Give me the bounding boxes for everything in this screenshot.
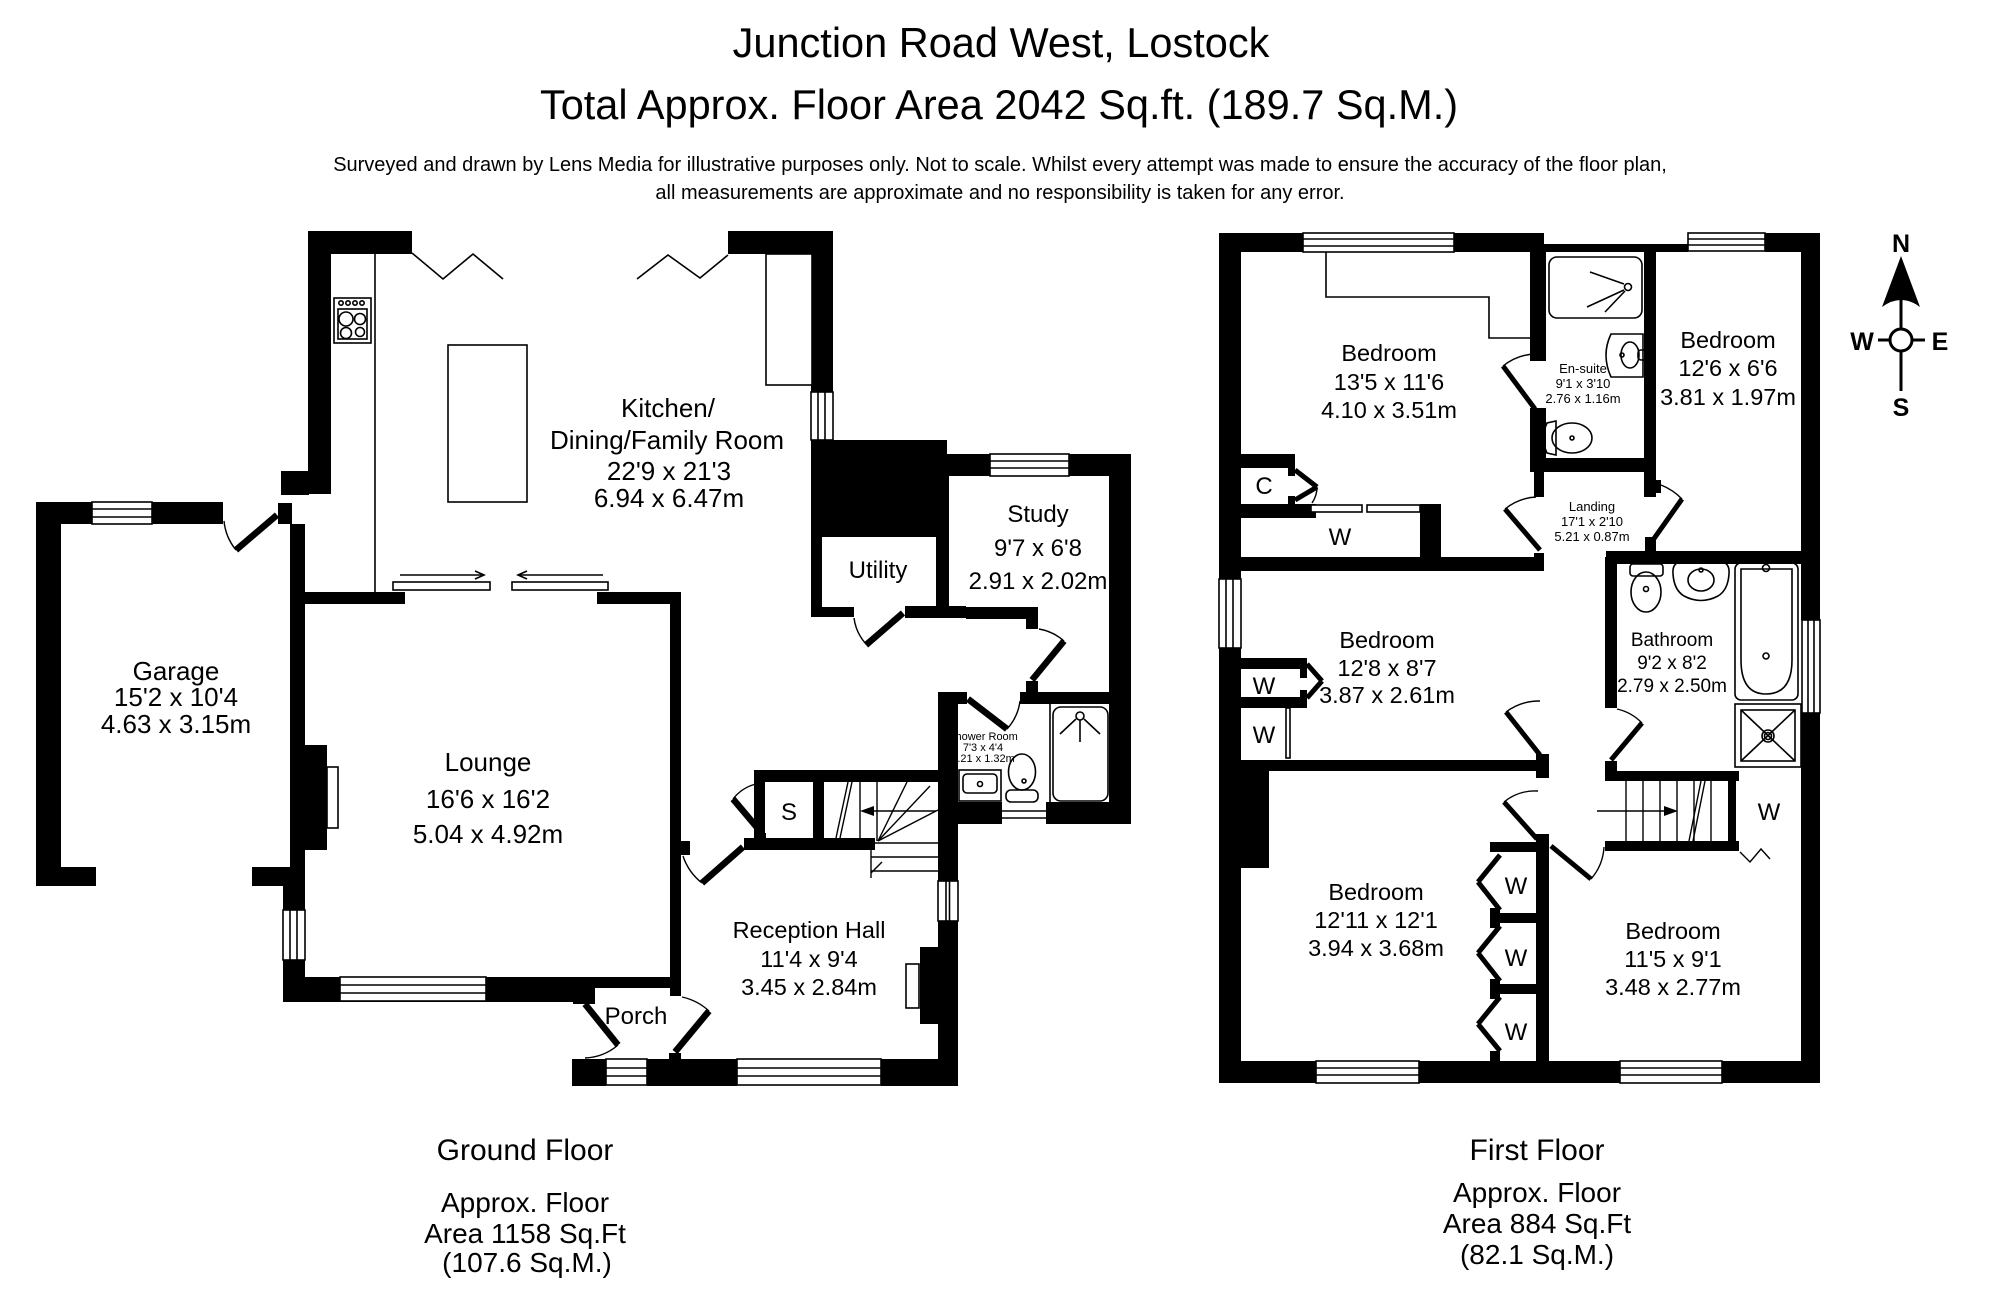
svg-text:16'6 x 16'2: 16'6 x 16'2 bbox=[426, 784, 550, 814]
svg-text:Bedroom: Bedroom bbox=[1328, 879, 1423, 905]
svg-text:9'7 x 6'8: 9'7 x 6'8 bbox=[994, 535, 1082, 562]
svg-text:15'2 x 10'4: 15'2 x 10'4 bbox=[114, 682, 238, 712]
svg-text:Lounge: Lounge bbox=[445, 747, 532, 777]
svg-text:12'8 x 8'7: 12'8 x 8'7 bbox=[1337, 655, 1436, 681]
svg-text:Approx. Floor: Approx. Floor bbox=[441, 1187, 609, 1218]
svg-text:Bedroom: Bedroom bbox=[1341, 340, 1436, 366]
svg-text:13'5 x 11'6: 13'5 x 11'6 bbox=[1334, 369, 1444, 395]
svg-text:W: W bbox=[1505, 945, 1528, 972]
svg-text:Study: Study bbox=[1007, 501, 1068, 528]
svg-text:3.45 x 2.84m: 3.45 x 2.84m bbox=[741, 974, 877, 1000]
svg-text:Landing: Landing bbox=[1569, 499, 1615, 514]
svg-text:4.10 x 3.51m: 4.10 x 3.51m bbox=[1321, 397, 1457, 423]
svg-text:(107.6 Sq.M.): (107.6 Sq.M.) bbox=[442, 1247, 612, 1278]
svg-text:N: N bbox=[1892, 230, 1910, 258]
svg-text:Junction Road West, Lostock: Junction Road West, Lostock bbox=[733, 19, 1270, 66]
svg-text:W: W bbox=[1253, 722, 1276, 749]
svg-text:5.04 x 4.92m: 5.04 x 4.92m bbox=[413, 819, 563, 849]
svg-text:S: S bbox=[781, 799, 797, 826]
svg-text:Total Approx. Floor Area 2042: Total Approx. Floor Area 2042 Sq.ft. (18… bbox=[540, 81, 1458, 128]
svg-text:6.94 x 6.47m: 6.94 x 6.47m bbox=[594, 483, 744, 513]
svg-text:Bedroom: Bedroom bbox=[1625, 918, 1720, 944]
svg-text:W: W bbox=[1850, 328, 1874, 356]
svg-text:S: S bbox=[1893, 394, 1910, 422]
svg-text:4.63 x 3.15m: 4.63 x 3.15m bbox=[101, 709, 251, 739]
svg-text:Surveyed and drawn by Lens Med: Surveyed and drawn by Lens Media for ill… bbox=[333, 154, 1667, 176]
svg-text:C: C bbox=[1255, 473, 1272, 500]
svg-text:3.48 x 2.77m: 3.48 x 2.77m bbox=[1605, 974, 1741, 1000]
svg-text:11'5 x 9'1: 11'5 x 9'1 bbox=[1624, 946, 1721, 972]
svg-text:3.81 x 1.97m: 3.81 x 1.97m bbox=[1660, 384, 1796, 410]
svg-text:22'9 x 21'3: 22'9 x 21'3 bbox=[607, 456, 731, 486]
svg-text:Reception Hall: Reception Hall bbox=[733, 917, 886, 943]
svg-text:9'2 x 8'2: 9'2 x 8'2 bbox=[1637, 653, 1707, 674]
svg-text:5.21 x 0.87m: 5.21 x 0.87m bbox=[1554, 529, 1629, 544]
svg-text:En-suite: En-suite bbox=[1559, 361, 1607, 376]
svg-text:Area 1158 Sq.Ft: Area 1158 Sq.Ft bbox=[424, 1218, 626, 1249]
svg-text:First Floor: First Floor bbox=[1470, 1134, 1605, 1167]
svg-text:2.21 x 1.32m: 2.21 x 1.32m bbox=[951, 753, 1015, 765]
svg-text:E: E bbox=[1932, 328, 1949, 356]
svg-text:Bedroom: Bedroom bbox=[1339, 627, 1434, 653]
svg-text:12'6 x 6'6: 12'6 x 6'6 bbox=[1678, 355, 1777, 381]
svg-text:2.91 x 2.02m: 2.91 x 2.02m bbox=[969, 568, 1108, 595]
svg-text:9'1 x 3'10: 9'1 x 3'10 bbox=[1556, 376, 1611, 391]
svg-text:Dining/Family Room: Dining/Family Room bbox=[550, 425, 784, 455]
svg-text:Utility: Utility bbox=[849, 557, 908, 584]
svg-text:11'4 x 9'4: 11'4 x 9'4 bbox=[760, 946, 857, 972]
svg-text:Approx. Floor: Approx. Floor bbox=[1453, 1177, 1621, 1208]
svg-text:all measurements are approxima: all measurements are approximate and no … bbox=[655, 182, 1344, 204]
svg-text:Porch: Porch bbox=[605, 1003, 668, 1030]
svg-text:Kitchen/: Kitchen/ bbox=[621, 393, 716, 423]
svg-text:Bathroom: Bathroom bbox=[1631, 630, 1713, 651]
svg-text:Bedroom: Bedroom bbox=[1680, 327, 1775, 353]
svg-text:Ground Floor: Ground Floor bbox=[437, 1134, 614, 1167]
svg-text:Area 884 Sq.Ft: Area 884 Sq.Ft bbox=[1443, 1208, 1632, 1239]
svg-text:3.87 x 2.61m: 3.87 x 2.61m bbox=[1319, 682, 1455, 708]
svg-text:3.94 x 3.68m: 3.94 x 3.68m bbox=[1308, 935, 1444, 961]
svg-text:17'1 x 2'10: 17'1 x 2'10 bbox=[1561, 514, 1623, 529]
svg-text:2.79 x 2.50m: 2.79 x 2.50m bbox=[1617, 676, 1727, 697]
svg-text:2.76 x 1.16m: 2.76 x 1.16m bbox=[1545, 391, 1620, 406]
svg-text:W: W bbox=[1505, 873, 1528, 900]
svg-text:W: W bbox=[1505, 1019, 1528, 1046]
svg-text:(82.1 Sq.M.): (82.1 Sq.M.) bbox=[1460, 1239, 1614, 1270]
svg-text:W: W bbox=[1253, 673, 1276, 700]
svg-text:W: W bbox=[1758, 799, 1781, 826]
svg-text:12'11 x 12'1: 12'11 x 12'1 bbox=[1314, 907, 1438, 933]
svg-text:W: W bbox=[1329, 524, 1352, 551]
